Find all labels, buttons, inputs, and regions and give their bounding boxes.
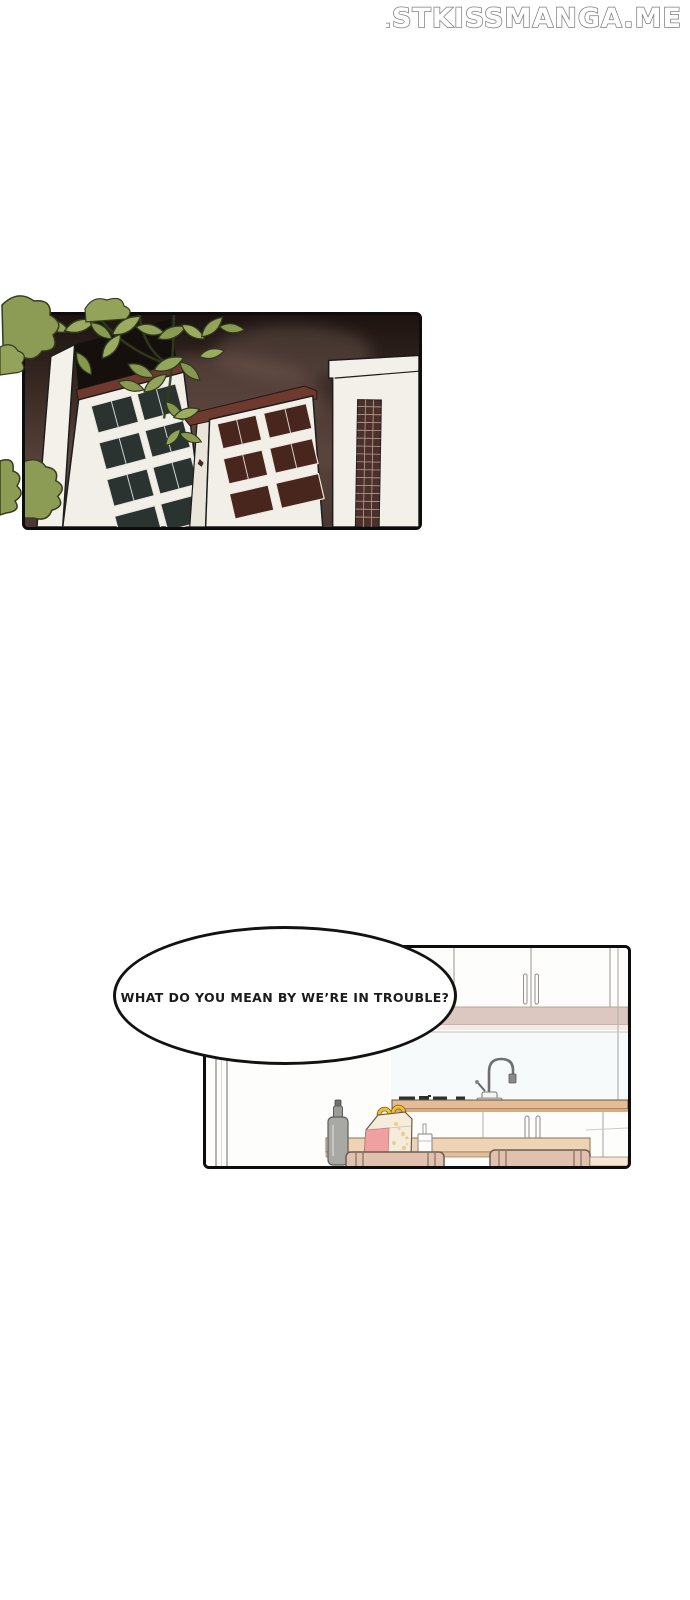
leaf-cluster-bottom-left bbox=[0, 460, 21, 515]
leaf-cluster-left bbox=[0, 345, 24, 375]
building-tower bbox=[329, 355, 419, 527]
kitchen-backwall bbox=[391, 1033, 628, 1099]
side-step bbox=[590, 1157, 628, 1166]
speech-bubble: WHAT DO YOU MEAN BY WE’RE IN TROUBLE? bbox=[113, 926, 457, 1065]
panel-city-night bbox=[22, 312, 422, 530]
chair-back bbox=[490, 1150, 590, 1166]
tower-brick-strip bbox=[355, 400, 381, 527]
manga-page: 1STKISSMANGA.ME bbox=[0, 0, 690, 1600]
speech-bubble-text: WHAT DO YOU MEAN BY WE’RE IN TROUBLE? bbox=[121, 986, 450, 1005]
site-watermark-text: 1STKISSMANGA.ME bbox=[386, 3, 682, 34]
chair-back bbox=[346, 1152, 444, 1166]
site-watermark: 1STKISSMANGA.ME bbox=[386, 0, 686, 36]
